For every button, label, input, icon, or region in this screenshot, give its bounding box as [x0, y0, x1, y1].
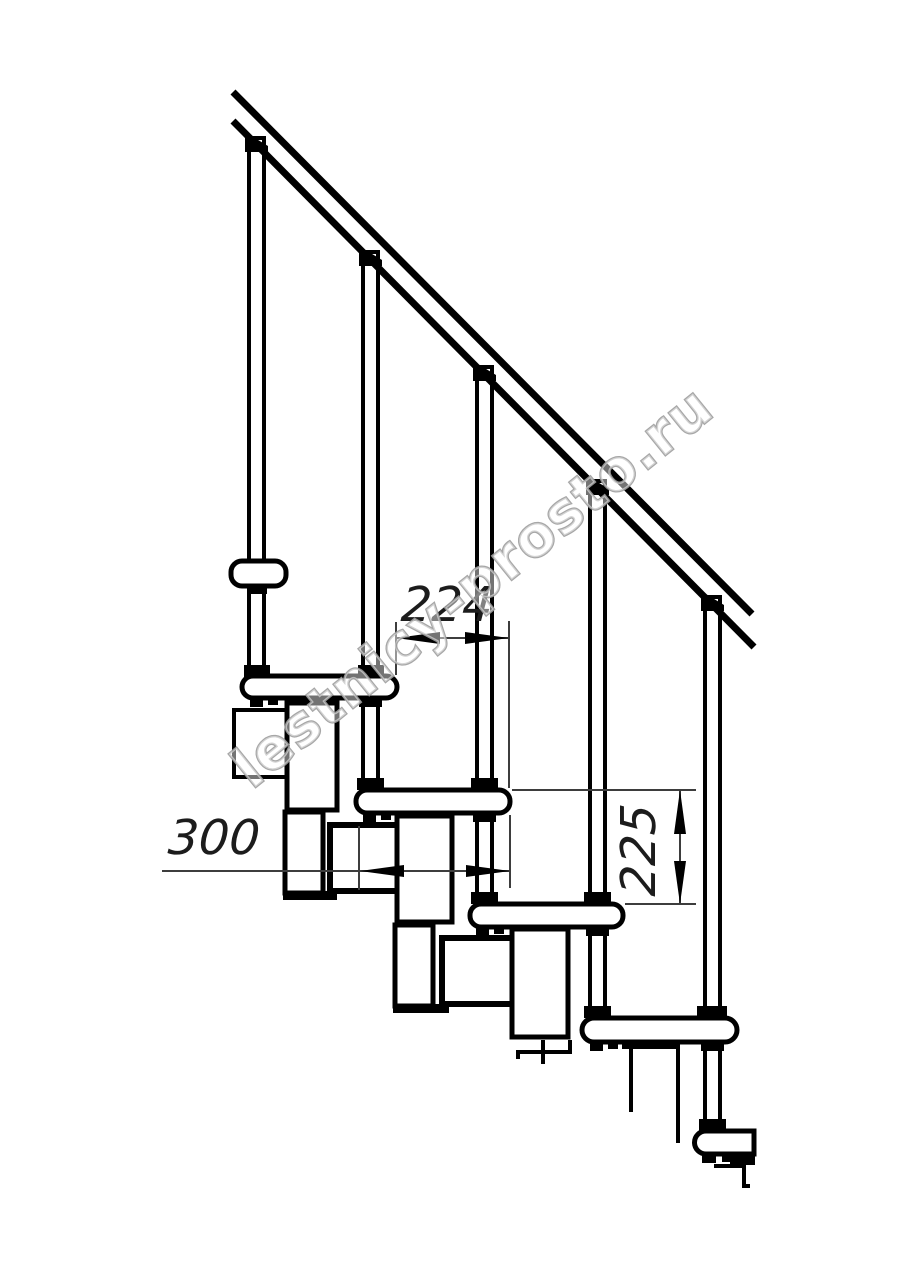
- baluster-seat: [244, 665, 270, 677]
- dimension-label-tread-width: 300: [166, 810, 262, 866]
- support-modules: [283, 703, 750, 1186]
- tread-foot: [590, 1042, 603, 1051]
- module-tube-2b: [395, 925, 433, 1006]
- staircase-drawing: 224 300 225 lestnicy-prosto.ru: [0, 0, 914, 1280]
- tread-foot: [476, 927, 489, 936]
- technical-drawing-canvas: 224 300 225 lestnicy-prosto.ru: [0, 0, 914, 1280]
- tread-top-stub: [231, 561, 286, 586]
- module-tube-2a: [397, 816, 452, 922]
- module-hook-bottom: [714, 1166, 750, 1186]
- tread-4: [582, 1018, 737, 1042]
- tread-5-partial: [695, 1131, 755, 1154]
- module-block-2: [330, 825, 405, 891]
- tread-foot: [730, 1155, 755, 1165]
- baluster-seat: [697, 1006, 727, 1018]
- baluster-seat: [699, 1119, 726, 1131]
- module-tube-1b: [285, 812, 323, 893]
- baluster-seat: [473, 813, 496, 822]
- baluster-seat: [247, 585, 267, 594]
- baluster-seat: [584, 1006, 611, 1018]
- watermark-text: lestnicy-prosto.ru: [220, 374, 726, 801]
- tread-foot: [250, 698, 263, 707]
- tread-foot: [702, 1154, 716, 1163]
- tread-foot: [363, 813, 376, 822]
- baluster-seat: [701, 1042, 724, 1051]
- dimension-label-riser: 225: [611, 802, 667, 898]
- tread-3: [470, 904, 623, 927]
- module-tube-3a: [512, 929, 568, 1037]
- tread-foot: [494, 927, 504, 934]
- baluster-seat: [357, 778, 384, 790]
- baluster-4: [590, 481, 605, 1018]
- baluster-seat: [586, 927, 609, 936]
- module-top-bar: [622, 1042, 680, 1049]
- dim-arrow-down-icon: [674, 861, 686, 904]
- tread-2: [356, 790, 510, 813]
- tread-foot: [381, 813, 391, 820]
- baluster-1: [249, 138, 264, 676]
- dim-arrow-up-icon: [674, 790, 686, 834]
- tread-foot: [608, 1042, 618, 1049]
- baluster-seat: [584, 892, 611, 904]
- baluster-seat: [471, 892, 498, 904]
- baluster-seat: [471, 778, 498, 790]
- module-block-3: [442, 938, 517, 1004]
